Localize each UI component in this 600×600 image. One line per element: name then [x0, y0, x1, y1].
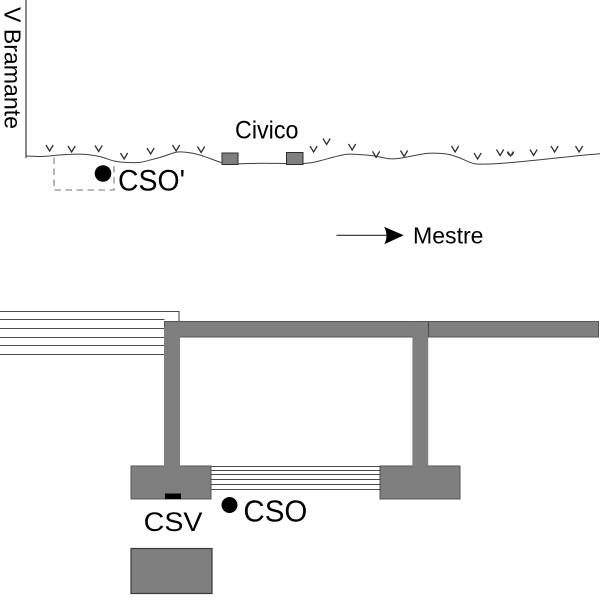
svg-text:CSO: CSO — [243, 493, 307, 528]
svg-text:CSV: CSV — [144, 507, 203, 537]
svg-text:Civico: Civico — [235, 117, 299, 145]
svg-text:CSO': CSO' — [118, 165, 185, 198]
svg-text:V Bramante: V Bramante — [0, 7, 26, 129]
svg-text:Mestre: Mestre — [413, 223, 484, 249]
